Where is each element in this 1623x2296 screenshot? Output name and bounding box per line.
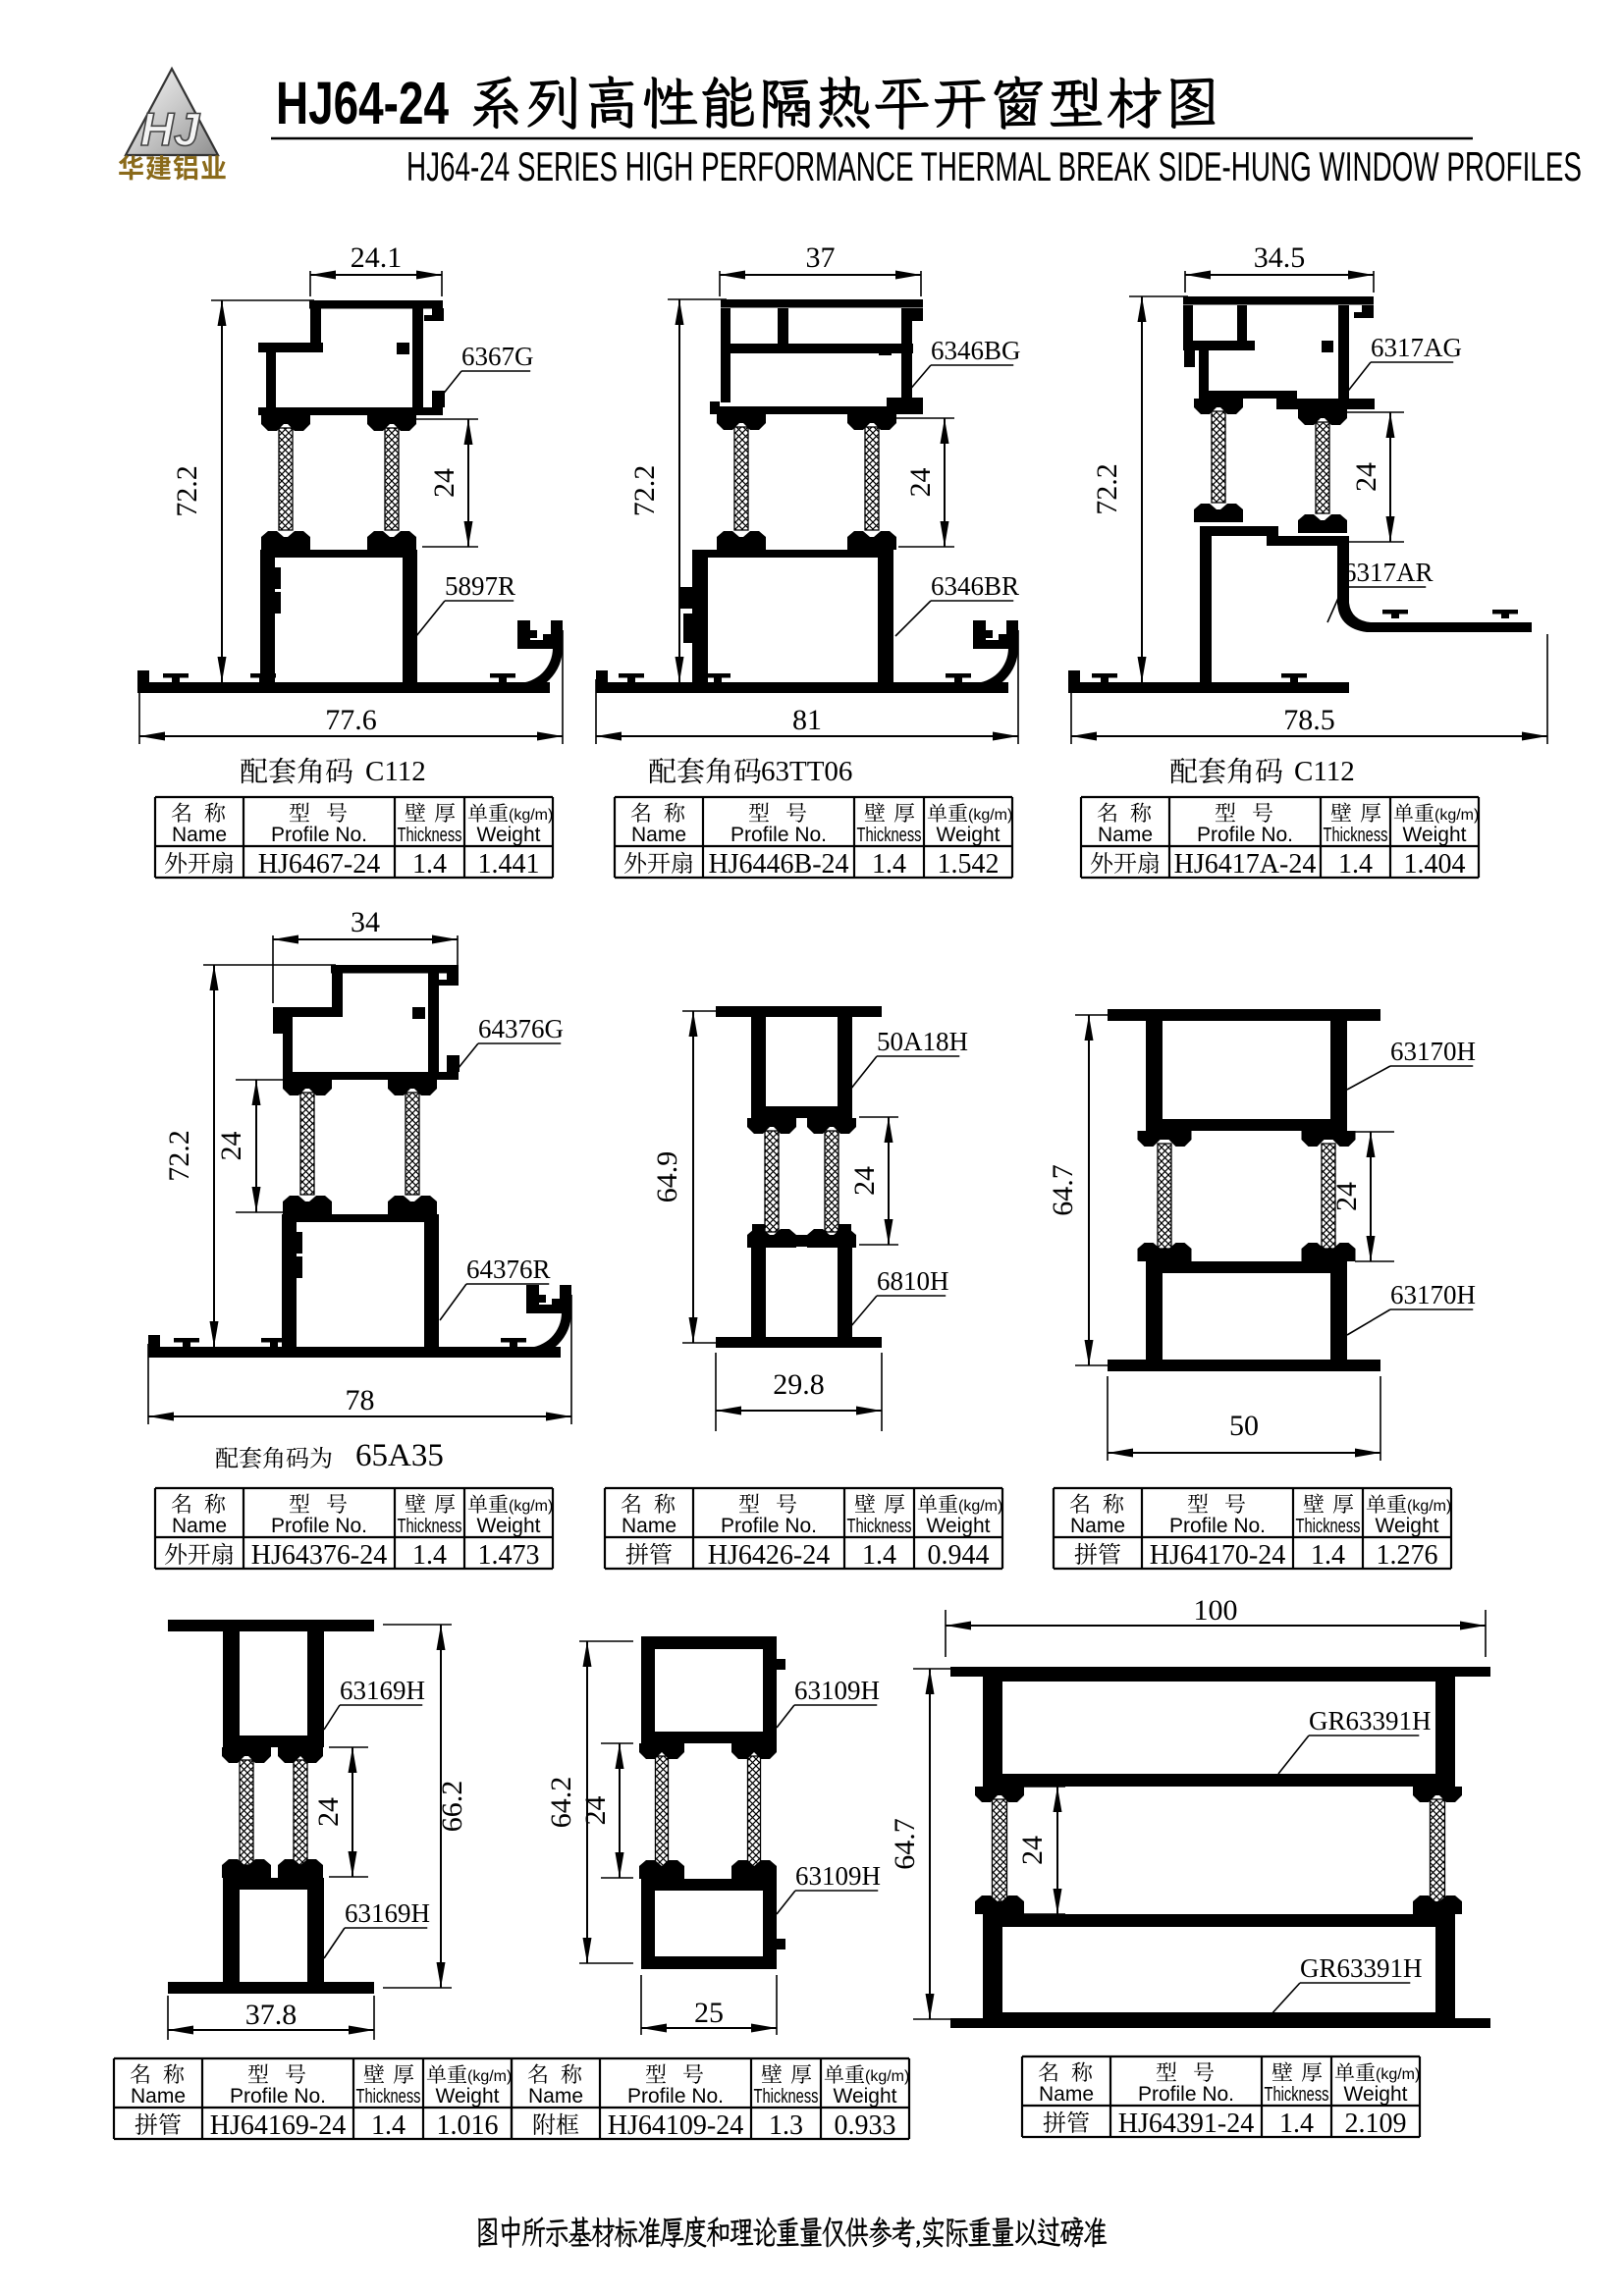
svg-text:(kg/m): (kg/m) <box>865 2068 909 2085</box>
svg-text:Weight: Weight <box>1403 824 1467 846</box>
svg-text:24: 24 <box>428 468 460 498</box>
svg-text:25: 25 <box>694 1997 724 2029</box>
svg-text:37: 37 <box>806 241 836 274</box>
svg-text:6317AG: 6317AG <box>1371 333 1462 362</box>
svg-text:24: 24 <box>1330 1182 1363 1211</box>
svg-text:24: 24 <box>312 1797 345 1827</box>
svg-text:Profile No.: Profile No. <box>271 824 367 846</box>
svg-text:HJ64-24: HJ64-24 <box>276 70 449 136</box>
svg-text:77.6: 77.6 <box>325 704 377 736</box>
svg-text:Name: Name <box>1098 824 1153 846</box>
svg-text:24.1: 24.1 <box>351 241 403 274</box>
svg-text:37.8: 37.8 <box>245 1999 298 2031</box>
svg-text:63109H: 63109H <box>794 1676 880 1705</box>
svg-text:Thickness: Thickness <box>1324 825 1388 846</box>
svg-text:0.933: 0.933 <box>835 2110 896 2141</box>
svg-text:Thickness: Thickness <box>398 1516 462 1537</box>
svg-text:Profile No.: Profile No. <box>1138 2083 1234 2106</box>
svg-text:Name: Name <box>1039 2083 1094 2106</box>
svg-text:63169H: 63169H <box>345 1898 430 1928</box>
svg-text:24: 24 <box>215 1132 247 1161</box>
svg-text:Thickness: Thickness <box>356 2086 421 2108</box>
svg-text:(kg/m): (kg/m) <box>509 807 553 824</box>
svg-text:Weight: Weight <box>834 2085 897 2108</box>
svg-text:1.542: 1.542 <box>938 849 1000 880</box>
svg-text:Name: Name <box>622 1515 676 1537</box>
svg-text:(kg/m): (kg/m) <box>1434 807 1479 824</box>
svg-text:HJ64109-24: HJ64109-24 <box>608 2110 743 2141</box>
svg-text:HJ: HJ <box>140 103 200 155</box>
svg-text:Weight: Weight <box>477 824 541 846</box>
svg-text:Weight: Weight <box>927 1515 991 1537</box>
svg-text:1.4: 1.4 <box>872 849 906 880</box>
svg-text:72.2: 72.2 <box>628 465 661 517</box>
svg-text:1.016: 1.016 <box>437 2110 499 2141</box>
svg-text:Weight: Weight <box>1344 2083 1408 2106</box>
svg-text:Profile No.: Profile No. <box>230 2085 326 2108</box>
svg-text:Profile No.: Profile No. <box>1169 1515 1266 1537</box>
svg-text:64376R: 64376R <box>466 1255 551 1284</box>
svg-text:64.7: 64.7 <box>1047 1164 1079 1216</box>
svg-text:Name: Name <box>172 824 227 846</box>
svg-text:6346BG: 6346BG <box>931 336 1021 365</box>
svg-text:63170H: 63170H <box>1390 1037 1476 1066</box>
svg-text:Thickness: Thickness <box>847 1516 912 1537</box>
svg-text:1.4: 1.4 <box>1279 2109 1314 2139</box>
svg-text:HJ64391-24: HJ64391-24 <box>1118 2109 1254 2139</box>
svg-text:65A35: 65A35 <box>355 1438 444 1473</box>
svg-text:78.5: 78.5 <box>1283 704 1335 736</box>
svg-text:HJ64169-24: HJ64169-24 <box>210 2110 346 2141</box>
svg-text:Name: Name <box>631 824 686 846</box>
svg-text:24: 24 <box>1350 462 1382 492</box>
svg-text:1.4: 1.4 <box>1311 1540 1345 1571</box>
svg-text:Profile No.: Profile No. <box>721 1515 817 1537</box>
svg-text:(kg/m): (kg/m) <box>1376 2066 1420 2083</box>
svg-text:29.8: 29.8 <box>773 1368 825 1401</box>
svg-text:0.944: 0.944 <box>928 1540 990 1571</box>
svg-text:HJ6467-24: HJ6467-24 <box>258 849 380 880</box>
svg-text:1.441: 1.441 <box>478 849 540 880</box>
svg-text:Profile No.: Profile No. <box>271 1515 367 1537</box>
svg-text:24: 24 <box>1016 1836 1049 1865</box>
svg-text:HJ64-24 SERIES HIGH PERFORMA: HJ64-24 SERIES HIGH PERFORMANCE THERMAL … <box>406 143 1582 189</box>
svg-text:C112: C112 <box>1294 756 1355 787</box>
svg-text:Thickness: Thickness <box>1296 1516 1361 1537</box>
svg-text:1.3: 1.3 <box>769 2110 803 2141</box>
svg-text:34: 34 <box>351 906 380 938</box>
svg-text:81: 81 <box>792 704 822 736</box>
svg-text:(kg/m): (kg/m) <box>958 1498 1002 1515</box>
svg-text:HJ6446B-24: HJ6446B-24 <box>708 849 848 880</box>
svg-text:50A18H: 50A18H <box>877 1027 968 1056</box>
svg-text:HJ64376-24: HJ64376-24 <box>251 1540 387 1571</box>
svg-text:Thickness: Thickness <box>398 825 462 846</box>
svg-text:6317AR: 6317AR <box>1343 558 1434 587</box>
svg-text:2.109: 2.109 <box>1345 2109 1407 2139</box>
svg-text:HJ64170-24: HJ64170-24 <box>1150 1540 1285 1571</box>
svg-text:1.4: 1.4 <box>862 1540 896 1571</box>
svg-text:Name: Name <box>528 2085 583 2108</box>
svg-text:63TT06: 63TT06 <box>761 756 852 787</box>
svg-text:Profile No.: Profile No. <box>730 824 827 846</box>
svg-text:78: 78 <box>346 1384 375 1416</box>
svg-text:63170H: 63170H <box>1390 1280 1476 1309</box>
svg-text:1.4: 1.4 <box>1338 849 1373 880</box>
svg-text:GR63391H: GR63391H <box>1309 1706 1432 1735</box>
svg-text:(kg/m): (kg/m) <box>968 807 1012 824</box>
svg-text:Weight: Weight <box>937 824 1001 846</box>
svg-text:HJ6417A-24: HJ6417A-24 <box>1174 849 1317 880</box>
svg-text:Name: Name <box>172 1515 227 1537</box>
svg-text:HJ6426-24: HJ6426-24 <box>708 1540 830 1571</box>
svg-text:24: 24 <box>904 468 937 498</box>
svg-text:72.2: 72.2 <box>1091 463 1123 515</box>
svg-text:C112: C112 <box>365 756 426 787</box>
svg-text:Profile No.: Profile No. <box>627 2085 724 2108</box>
svg-text:Name: Name <box>131 2085 186 2108</box>
svg-text:Profile No.: Profile No. <box>1197 824 1293 846</box>
svg-text:GR63391H: GR63391H <box>1300 1953 1423 1983</box>
svg-text:Thickness: Thickness <box>754 2086 819 2108</box>
svg-text:64.2: 64.2 <box>545 1777 577 1829</box>
svg-text:5897R: 5897R <box>445 571 515 601</box>
svg-text:34.5: 34.5 <box>1254 241 1306 274</box>
svg-text:1.4: 1.4 <box>412 1540 447 1571</box>
svg-text:72.2: 72.2 <box>163 1130 195 1182</box>
svg-text:6367G: 6367G <box>461 342 534 371</box>
svg-text:1.276: 1.276 <box>1377 1540 1438 1571</box>
svg-text:66.2: 66.2 <box>436 1781 468 1833</box>
svg-text:100: 100 <box>1194 1594 1238 1627</box>
svg-text:1.4: 1.4 <box>371 2110 406 2141</box>
svg-text:1.4: 1.4 <box>412 849 447 880</box>
svg-text:6810H: 6810H <box>877 1266 949 1296</box>
svg-text:64.7: 64.7 <box>889 1818 921 1870</box>
svg-text:64376G: 64376G <box>478 1014 564 1043</box>
svg-text:Thickness: Thickness <box>1265 2084 1329 2106</box>
svg-text:Weight: Weight <box>477 1515 541 1537</box>
svg-text:Weight: Weight <box>1376 1515 1439 1537</box>
svg-text:24: 24 <box>848 1166 881 1196</box>
svg-text:(kg/m): (kg/m) <box>1407 1498 1451 1515</box>
svg-text:50: 50 <box>1229 1410 1259 1442</box>
svg-text:Thickness: Thickness <box>857 825 922 846</box>
svg-text:64.9: 64.9 <box>651 1151 683 1203</box>
svg-text:1.473: 1.473 <box>478 1540 540 1571</box>
svg-text:(kg/m): (kg/m) <box>467 2068 512 2085</box>
svg-text:6346BR: 6346BR <box>931 571 1019 601</box>
svg-text:24: 24 <box>579 1796 612 1826</box>
svg-text:1.404: 1.404 <box>1404 849 1466 880</box>
svg-text:63169H: 63169H <box>340 1676 425 1705</box>
svg-text:63109H: 63109H <box>795 1861 881 1891</box>
svg-text:72.2: 72.2 <box>171 465 203 517</box>
svg-text:Weight: Weight <box>436 2085 500 2108</box>
svg-text:Name: Name <box>1070 1515 1125 1537</box>
svg-text:(kg/m): (kg/m) <box>509 1498 553 1515</box>
